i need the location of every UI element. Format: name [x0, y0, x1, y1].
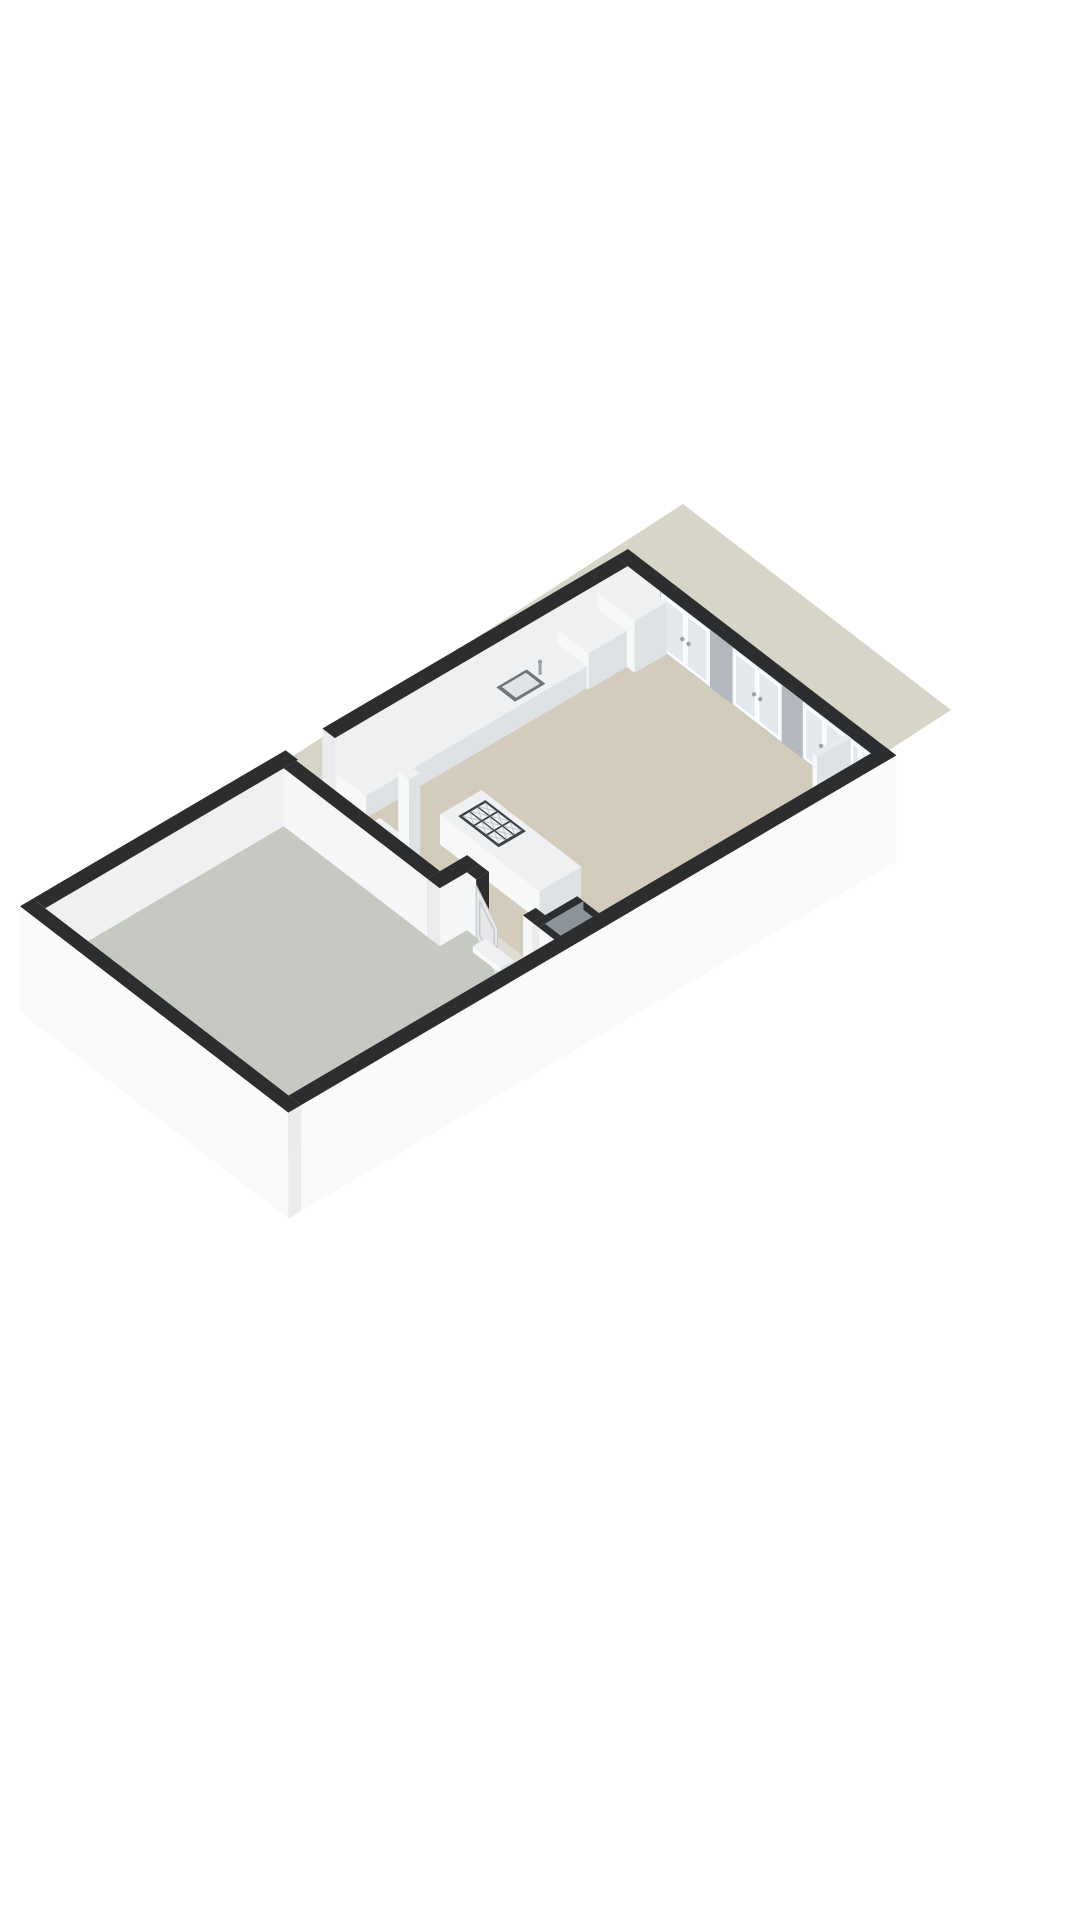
- sw-outer-wall-east-face: [288, 1105, 301, 1219]
- french-door-2-handle-left: [752, 692, 756, 696]
- door-jamb-left-south-face: [467, 872, 476, 937]
- floorplan-3d-rendering: [0, 0, 1080, 1920]
- french-door-1-handle-left: [680, 637, 684, 641]
- floor-plan-canvas: [0, 0, 1080, 1920]
- french-door-2-handle-right: [758, 697, 762, 701]
- kitchen-sink-faucet-spout: [538, 660, 542, 664]
- connector-wall-south-face: [427, 879, 440, 947]
- french-door-1-handle-right: [686, 642, 690, 646]
- french-door-3-handle-left: [819, 744, 823, 748]
